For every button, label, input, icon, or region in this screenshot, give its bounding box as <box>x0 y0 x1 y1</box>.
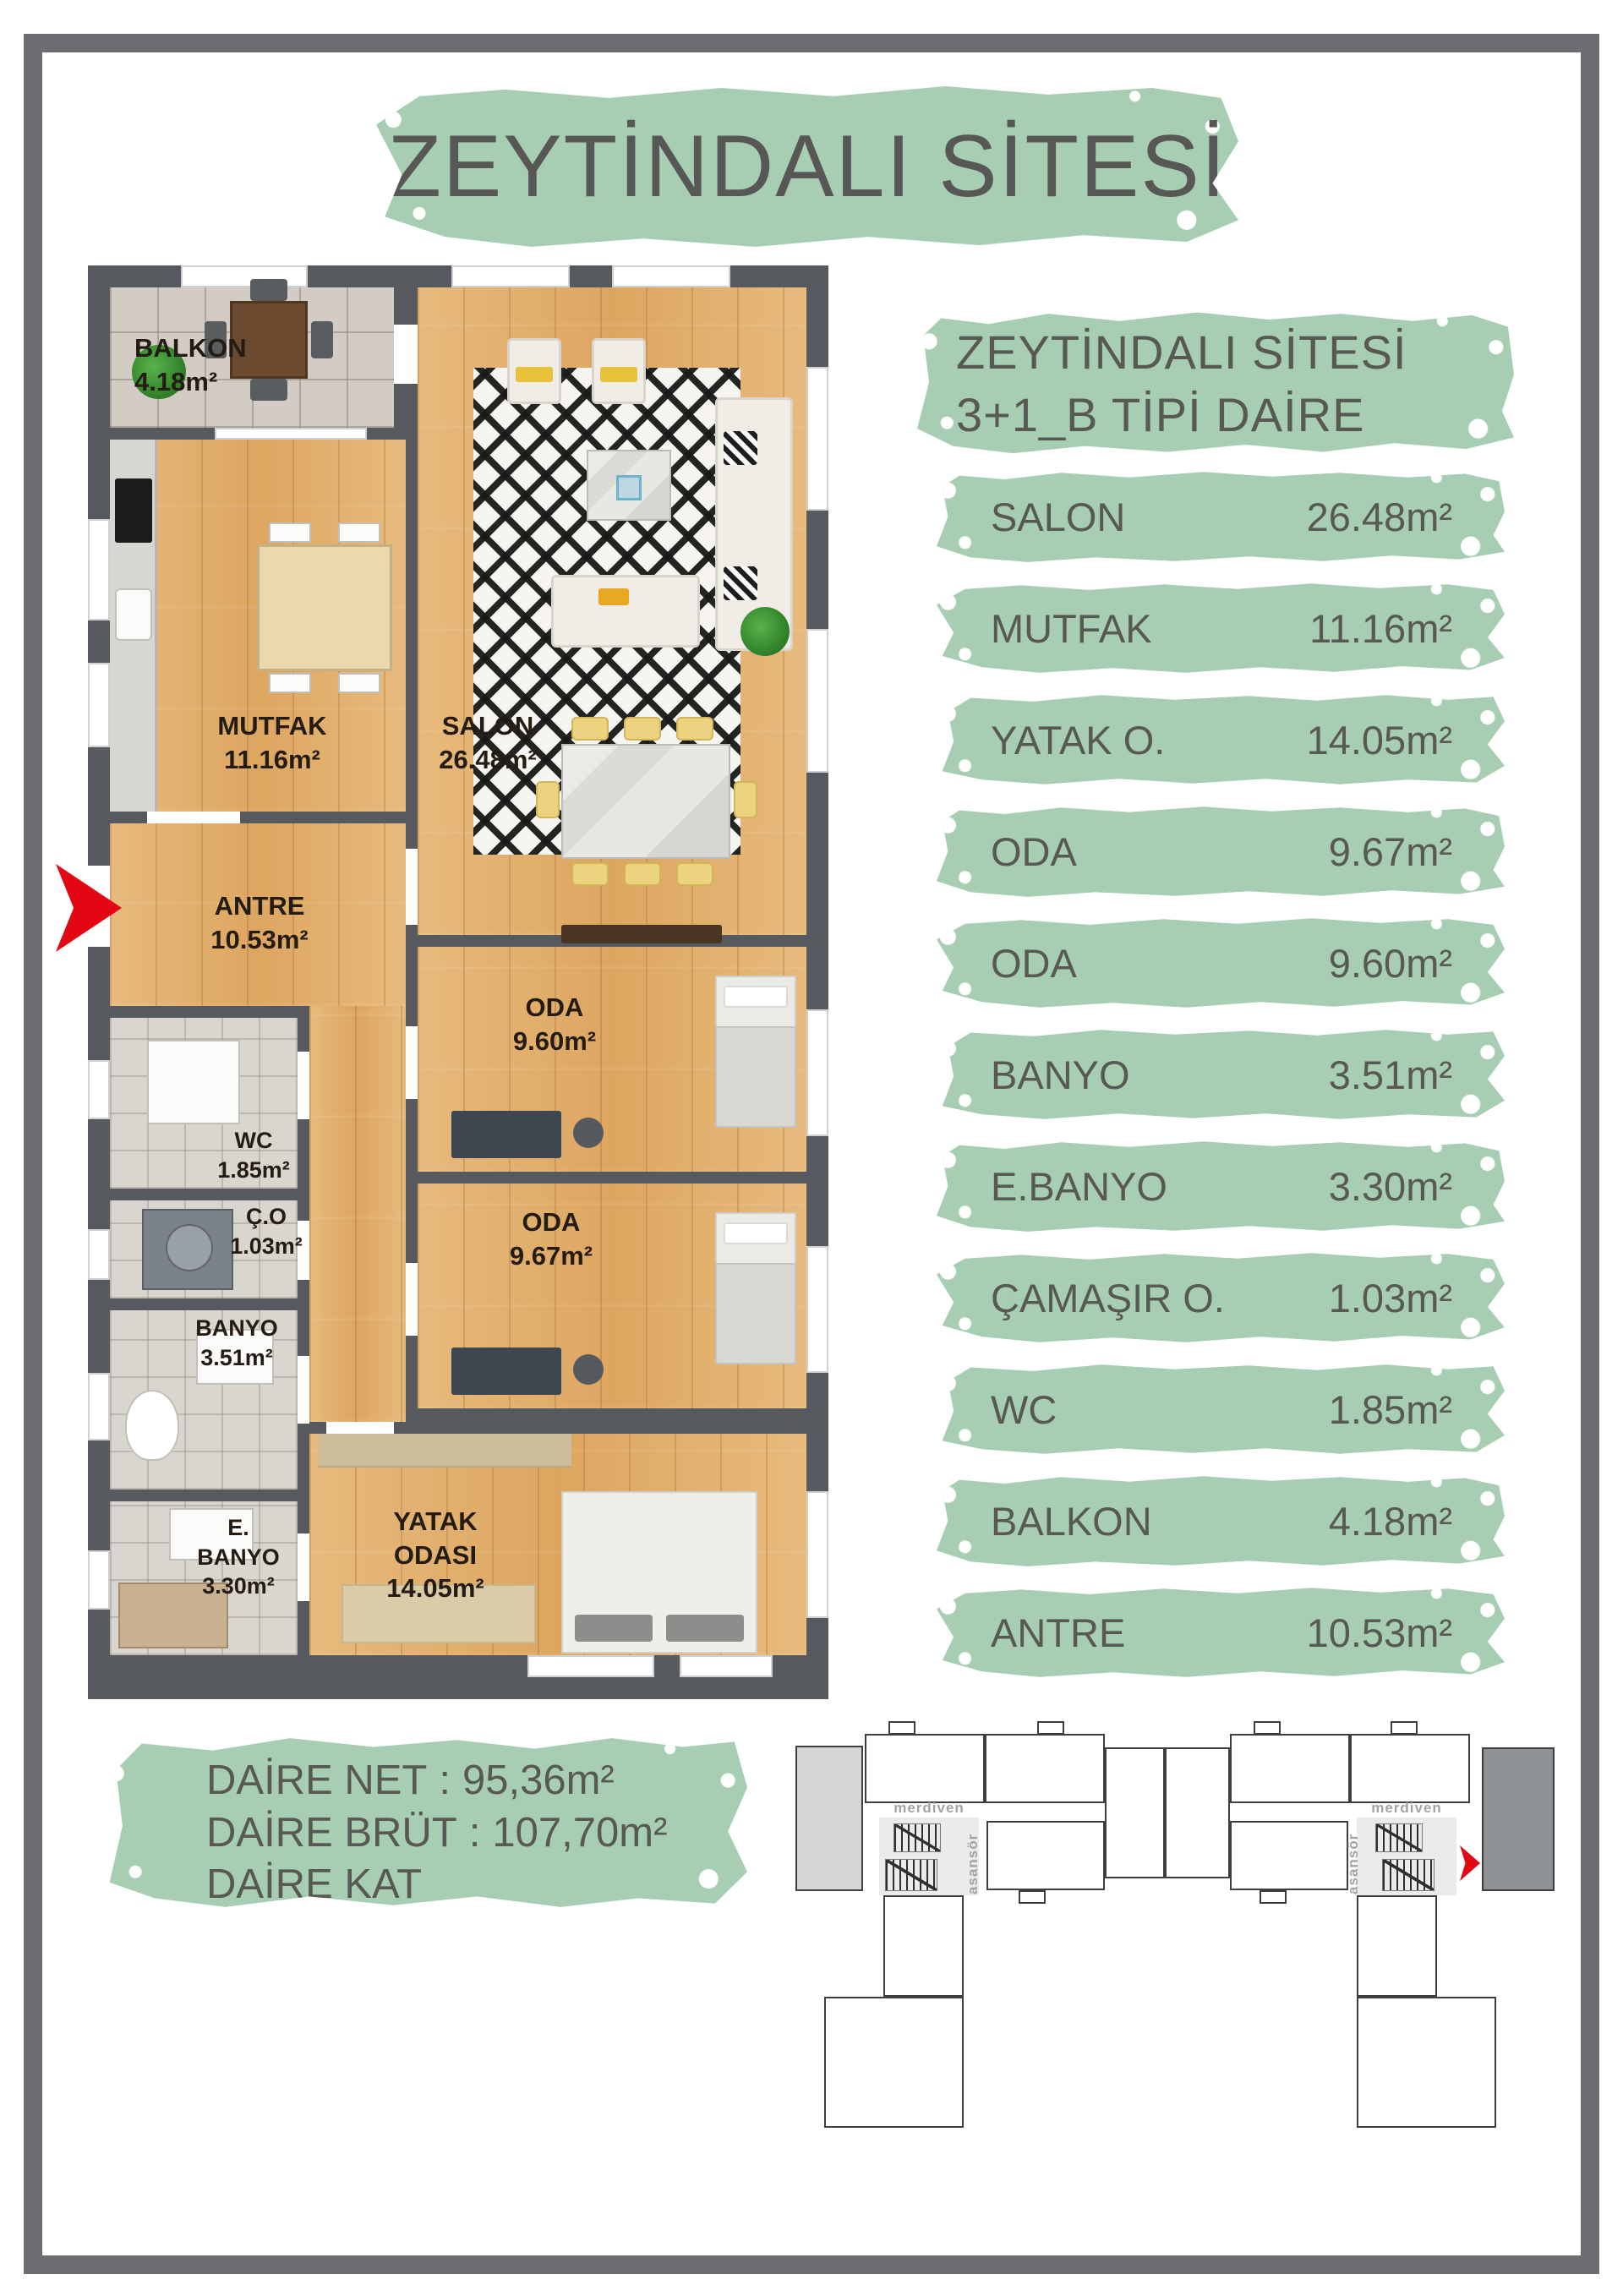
desk-chair <box>573 1118 604 1148</box>
keyplan-unit <box>1230 1821 1348 1890</box>
armchair-cushion <box>600 367 637 382</box>
title-banner: ZEYTİNDALI SİTESİ <box>376 83 1238 250</box>
legend-header-line1: ZEYTİNDALI SİTESİ <box>956 321 1514 384</box>
room-area: 1.03m² <box>199 1232 334 1261</box>
summary-banner: DAİRE NET:95,36m² DAİRE BRÜT:107,70m² DA… <box>103 1735 747 1911</box>
wc-sink <box>147 1040 240 1124</box>
door-wc <box>298 1052 309 1119</box>
bed-pillow <box>724 986 788 1008</box>
dining-chair <box>624 862 661 886</box>
legend-row-label: SALON <box>991 494 1125 540</box>
summary-separator: : <box>361 1914 373 1960</box>
bed-pillow <box>724 1222 788 1244</box>
room-area: 3.51m² <box>156 1343 317 1373</box>
legend-row-value: 1.85m² <box>1329 1386 1452 1433</box>
room-label-banyo: BANYO 3.51m² <box>156 1314 317 1372</box>
room-area: 26.48m² <box>412 743 564 777</box>
legend-row: ÇAMAŞIR O. 1.03m² <box>937 1251 1505 1344</box>
stairs-icon <box>1375 1823 1423 1852</box>
dining-chair <box>624 717 661 741</box>
room-name: WC <box>189 1126 318 1156</box>
door-yatak <box>326 1422 394 1434</box>
keyplan-unit <box>1357 1895 1437 1997</box>
balcony-chair <box>311 321 333 358</box>
sofa-pillow <box>724 431 757 465</box>
plant <box>740 607 790 656</box>
dining-chair <box>571 862 609 886</box>
kitchen-table <box>257 544 392 671</box>
legend-row-label: ODA <box>991 940 1077 987</box>
room-name: MUTFAK <box>188 709 357 743</box>
legend-row: BANYO 3.51m² <box>937 1028 1505 1121</box>
keyplan-stairs-label: merdiven <box>879 1800 979 1817</box>
summary-value: 107,70m² <box>492 1810 667 1856</box>
desk-chair <box>573 1354 604 1385</box>
legend-row: BALKON 4.18m² <box>937 1474 1505 1567</box>
window-camasir <box>88 1229 110 1280</box>
room-area: 3.30m² <box>171 1572 306 1601</box>
bed-blanket <box>715 1026 796 1128</box>
stairs-icon <box>885 1859 937 1891</box>
keyplan-unit-gray <box>795 1746 863 1891</box>
room-label-mutfak: MUTFAK 11.16m² <box>188 709 357 776</box>
legend-row-value: 1.03m² <box>1329 1275 1452 1321</box>
legend-row-label: MUTFAK <box>991 605 1152 652</box>
keyplan-shaft <box>1254 1721 1281 1735</box>
legend-row-label: WC <box>991 1386 1057 1433</box>
window-yatak-right <box>806 1491 828 1618</box>
dining-chair <box>676 862 713 886</box>
legend-row-label: BALKON <box>991 1498 1152 1544</box>
bed-pillow <box>666 1615 744 1642</box>
room-name: YATAK <box>351 1505 520 1539</box>
window-banyo <box>88 1373 110 1440</box>
kitchen-chair <box>269 522 311 543</box>
sofa-pillow <box>724 566 757 600</box>
summary-label: DAİRE NET <box>206 1758 427 1803</box>
window-yatak-bottom-2 <box>680 1655 773 1677</box>
legend-row-label: YATAK O. <box>991 717 1165 763</box>
toilet <box>125 1390 179 1461</box>
summary-line-kat-brut: DAİRE KAT BRÜTÜ:173,20m² <box>206 1859 747 1963</box>
legend-row-label: E.BANYO <box>991 1163 1167 1210</box>
stairs-icon <box>893 1823 941 1852</box>
room-name: ANTRE <box>185 889 334 923</box>
kitchen-chair <box>338 673 380 693</box>
room-label-wc: WC 1.85m² <box>189 1126 318 1184</box>
dining-chair <box>676 717 713 741</box>
legend-row-value: 4.18m² <box>1329 1498 1452 1544</box>
room-area: 11.16m² <box>188 743 357 777</box>
keyplan-stairs-label: merdiven <box>1357 1800 1456 1817</box>
bed-blanket <box>715 1263 796 1364</box>
window-oda-967 <box>806 1246 828 1373</box>
room-name: SALON <box>412 709 564 743</box>
legend-row-value: 3.51m² <box>1329 1052 1452 1098</box>
room-label-antre: ANTRE 10.53m² <box>185 889 334 956</box>
keyplan-unit <box>1105 1747 1165 1878</box>
summary-value: 95,36m² <box>462 1758 615 1803</box>
door-oda-960 <box>406 1026 418 1099</box>
window-oda-960 <box>806 1009 828 1136</box>
door-balkon <box>394 325 418 384</box>
room-label-ebanyo: E. BANYO 3.30m² <box>171 1513 306 1601</box>
summary-separator: : <box>439 1758 451 1803</box>
room-name-2: ODASI <box>351 1539 520 1572</box>
room-area: 9.67m² <box>471 1239 631 1273</box>
legend-row-label: BANYO <box>991 1052 1130 1098</box>
keyplan-shaft <box>1260 1890 1287 1904</box>
kitchen-chair <box>338 522 380 543</box>
legend-row: MUTFAK 11.16m² <box>937 582 1505 675</box>
tv-unit <box>561 925 722 943</box>
dining-chair <box>734 781 757 818</box>
kitchen-chair <box>269 673 311 693</box>
summary-label: DAİRE BRÜT <box>206 1810 457 1856</box>
legend-row-value: 11.16m² <box>1309 605 1452 652</box>
page-title: ZEYTİNDALI SİTESİ <box>387 117 1227 217</box>
door-oda-967 <box>406 1263 418 1336</box>
sofa-cushion-yellow <box>598 588 629 605</box>
legend-row-label: ANTRE <box>991 1610 1125 1656</box>
stairs-icon <box>1382 1859 1434 1891</box>
room-name: BANYO <box>156 1314 317 1343</box>
keyplan-unit <box>1350 1734 1470 1803</box>
door-salon <box>406 849 418 925</box>
room-name: ODA <box>474 991 635 1025</box>
dining-chair <box>571 717 609 741</box>
legend-row-value: 3.30m² <box>1329 1163 1452 1210</box>
window-yatak-bottom-1 <box>527 1655 654 1677</box>
keyplan-unit <box>824 1997 964 2128</box>
keyplan-unit <box>1230 1734 1350 1803</box>
room-name: Ç.O <box>199 1202 334 1232</box>
desk <box>451 1111 561 1158</box>
desk <box>451 1348 561 1395</box>
legend-row: ODA 9.67m² <box>937 805 1505 898</box>
armchair-cushion <box>516 367 553 382</box>
building-key-plan: merdiven asansör merdiven asansör <box>765 1712 1577 2135</box>
keyplan-unit <box>865 1734 985 1803</box>
keyplan-unit <box>985 1734 1105 1803</box>
legend-row-label: ÇAMAŞIR O. <box>991 1275 1225 1321</box>
room-label-salon: SALON 26.48m² <box>412 709 564 776</box>
keyplan-unit-highlighted <box>1482 1747 1555 1891</box>
room-name: E. <box>171 1513 306 1543</box>
summary-separator: : <box>469 1810 481 1856</box>
keyplan-elevator-label: asansör <box>965 1820 981 1894</box>
sofa-two-seat <box>551 575 700 648</box>
window-salon-right-2 <box>806 629 828 773</box>
legend-row: ODA 9.60m² <box>937 916 1505 1009</box>
summary-label: DAİRE KAT BRÜTÜ <box>206 1861 421 1960</box>
kitchen-sink <box>115 588 152 641</box>
legend-row-value: 10.53m² <box>1307 1610 1452 1656</box>
wardrobe <box>318 1434 571 1468</box>
door-mutfak <box>147 812 240 823</box>
window-salon-top-1 <box>451 265 570 287</box>
room-label-oda-967: ODA 9.67m² <box>471 1205 631 1272</box>
legend-row-value: 9.60m² <box>1329 940 1452 987</box>
summary-line-brut: DAİRE BRÜT:107,70m² <box>206 1807 747 1860</box>
window-salon-top-2 <box>612 265 730 287</box>
keyplan-unit <box>1357 1997 1496 2128</box>
keyplan-shaft <box>1019 1890 1046 1904</box>
legend-row-value: 9.67m² <box>1329 828 1452 875</box>
summary-line-net: DAİRE NET:95,36m² <box>206 1755 747 1807</box>
legend-row: WC 1.85m² <box>937 1363 1505 1456</box>
window-mutfak-2 <box>88 663 110 747</box>
balcony-chair <box>250 279 287 301</box>
bed-pillow <box>575 1615 653 1642</box>
legend-row-value: 26.48m² <box>1307 494 1452 540</box>
room-name: BALKON <box>134 331 303 365</box>
dining-chair <box>536 781 560 818</box>
window-ebanyo <box>88 1550 110 1610</box>
keyplan-unit <box>986 1821 1105 1890</box>
legend-row: E.BANYO 3.30m² <box>937 1140 1505 1233</box>
legend-row-label: ODA <box>991 828 1077 875</box>
legend-header: ZEYTİNDALI SİTESİ 3+1_B TİPİ DAİRE PLANI <box>917 309 1514 455</box>
window-mutfak-1 <box>88 519 110 620</box>
window-balkon <box>181 265 308 287</box>
room-label-camasir: Ç.O 1.03m² <box>199 1202 334 1260</box>
legend-row: ANTRE 10.53m² <box>937 1586 1505 1679</box>
room-area: 4.18m² <box>134 365 303 399</box>
cooktop <box>115 478 152 543</box>
room-label-yatak: YATAK ODASI 14.05m² <box>351 1505 520 1605</box>
legend-row-value: 14.05m² <box>1307 717 1452 763</box>
coffee-table-glass <box>616 475 642 500</box>
room-name-2: BANYO <box>171 1543 306 1572</box>
room-area: 10.53m² <box>185 923 334 957</box>
keyplan-shaft <box>888 1721 915 1735</box>
room-area: 14.05m² <box>351 1572 520 1605</box>
room-area: 1.85m² <box>189 1156 318 1185</box>
floor-plan: BALKON 4.18m² MUTFAK 11.16m² SALON 26.48… <box>88 265 828 1699</box>
summary-value: 173,20m² <box>384 1914 559 1960</box>
window-balkon-mutfak <box>215 428 367 440</box>
window-wc <box>88 1060 110 1119</box>
room-area: 9.60m² <box>474 1025 635 1058</box>
legend-row: SALON 26.48m² <box>937 470 1505 563</box>
keyplan-unit <box>883 1895 964 1997</box>
keyplan-entrance-arrow-icon <box>1460 1845 1480 1881</box>
room-label-balkon: BALKON 4.18m² <box>134 331 303 398</box>
keyplan-elevator-label: asansör <box>1345 1820 1362 1894</box>
window-salon-right-1 <box>806 367 828 511</box>
keyplan-shaft <box>1037 1721 1064 1735</box>
room-label-oda-960: ODA 9.60m² <box>474 991 635 1058</box>
dining-table <box>561 744 730 859</box>
legend-row: YATAK O. 14.05m² <box>937 693 1505 786</box>
room-name: ODA <box>471 1205 631 1239</box>
keyplan-unit <box>1165 1747 1230 1878</box>
keyplan-shaft <box>1391 1721 1418 1735</box>
